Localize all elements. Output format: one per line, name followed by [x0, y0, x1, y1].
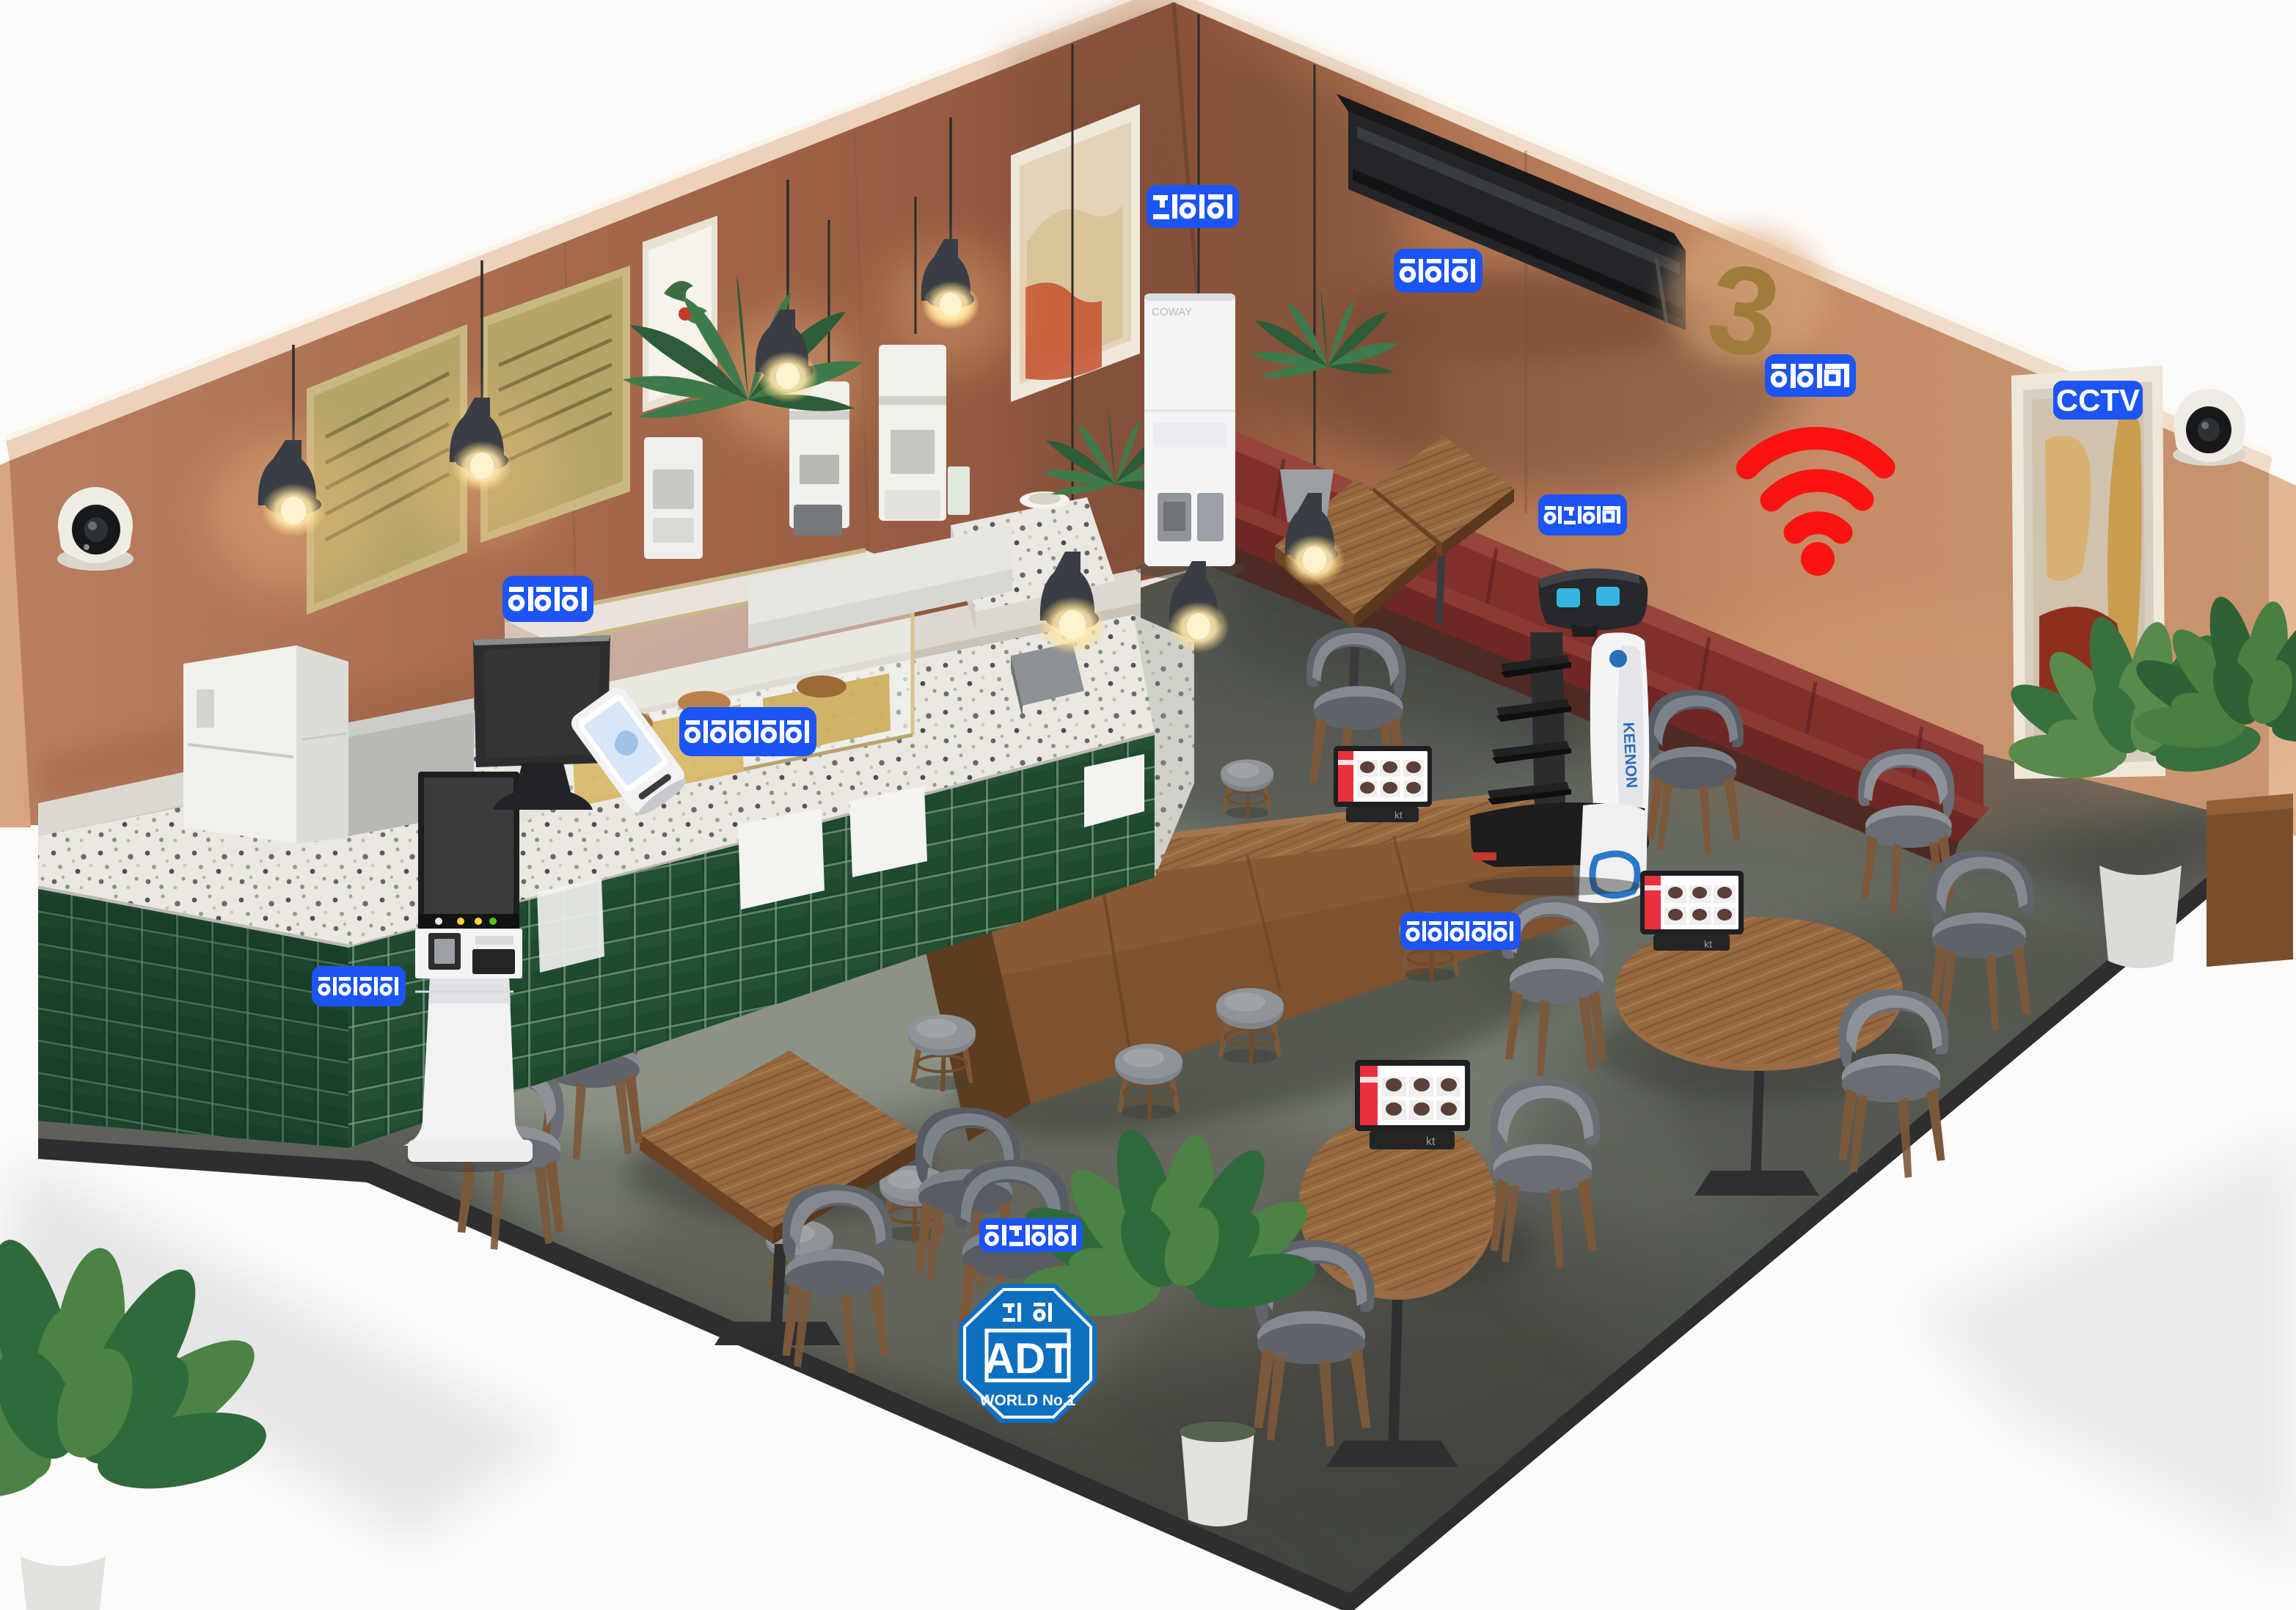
svg-text:CCTV: CCTV — [2056, 383, 2140, 417]
svg-text:kt: kt — [1704, 938, 1712, 950]
svg-text:COWAY: COWAY — [1152, 306, 1192, 318]
svg-text:KEENON: KEENON — [1620, 722, 1640, 788]
svg-text:kt: kt — [1426, 1135, 1436, 1148]
svg-text:WORLD No.1: WORLD No.1 — [980, 1392, 1076, 1409]
svg-text:kt: kt — [1394, 809, 1403, 821]
svg-text:ADT: ADT — [984, 1335, 1071, 1383]
